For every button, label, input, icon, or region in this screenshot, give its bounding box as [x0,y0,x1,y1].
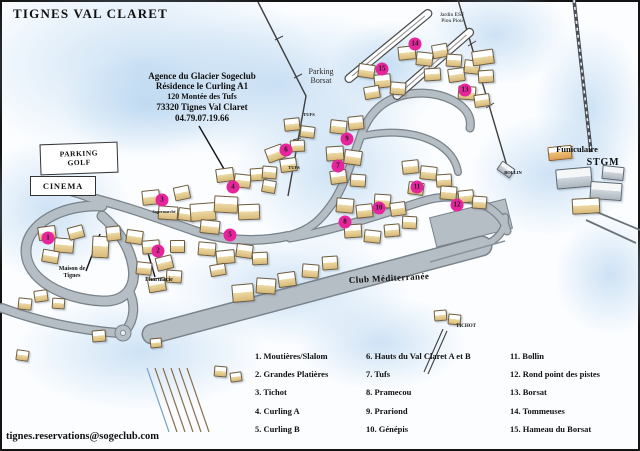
building [215,249,235,265]
building [329,119,347,135]
legend-item: 4. Curling A [255,406,328,416]
building [471,49,495,67]
building [383,223,400,237]
legend-item: 14. Tommeuses [510,406,600,416]
building [261,165,277,179]
stgm-label: STGM [587,157,620,168]
agency-address-block: Agence du Glacier Sogeclub Résidence le … [128,71,276,123]
building [290,140,306,153]
legend-item: 10. Génépis [366,424,471,434]
building [363,229,381,244]
building [355,203,373,219]
building [322,255,339,270]
bollin-label: BOLLIN [504,170,522,175]
building [478,69,495,83]
legend-item: 12. Rond point des pistes [510,369,600,379]
legend-item: 6. Hauts du Val Claret A et B [366,351,471,361]
agency-line-3: 120 Montée des Tufs [128,92,276,102]
building [439,185,457,200]
building [105,225,121,241]
supermarche-label: Supermarché [152,209,175,214]
building [415,51,433,67]
building [424,67,442,81]
building [261,179,277,194]
tufs-lift-label-upper: TUFS [303,112,315,117]
building [397,45,416,61]
building [215,167,235,183]
building [17,297,32,310]
legend-item: 2. Grandes Platières [255,369,328,379]
building [555,166,593,189]
legend-item: 1. Moutières/Slalom [255,351,328,361]
agency-line-1: Agence du Glacier Sogeclub [128,71,276,81]
legend-item: 7. Tufs [366,369,471,379]
building [231,283,254,303]
building [214,195,239,213]
building [389,81,406,95]
tichot-label: TICHOT [456,324,476,329]
building [150,337,163,348]
legend-column-1: 1. Moutières/Slalom2. Grandes Platières3… [255,351,328,442]
building [343,149,363,166]
building [209,263,227,278]
building [214,365,228,377]
map-canvas: PARKING GOLF CINEMA TIGNES VAL CLARET Ag… [0,0,640,451]
legend-item: 8. Pramecou [366,387,471,397]
building [238,204,261,221]
agency-line-2: Résidence le Curling A1 [128,81,276,91]
building [141,189,160,206]
building [141,239,160,255]
building [329,169,348,185]
tufs-lift-label-lower: TUFS [288,165,300,170]
legend-item: 9. Prariond [366,406,471,416]
pharmacie-label: Pharmacie [145,277,173,284]
agency-line-5: 04.79.07.19.66 [128,113,276,123]
building [52,298,66,310]
jardin-esf-piou-piou-label: Jardin ESF Piou Piou [440,12,464,24]
building [363,85,381,101]
legend-item: 11. Bollin [510,351,600,361]
building [407,181,425,196]
building [41,249,60,265]
contact-email: tignes.reservations@sogeclub.com [6,431,159,442]
maison-de-tignes-label: Maison de Tignes [59,266,86,279]
building [325,145,344,161]
building [170,240,185,253]
building [173,184,192,201]
building [434,309,448,321]
building [473,93,491,108]
parking-borsat-label: Parking Borsat [309,68,334,85]
building [255,277,276,294]
building [572,197,601,214]
building [199,219,220,235]
building [135,261,152,276]
building [252,252,269,266]
building [33,289,49,303]
legend-item: 5. Curling B [255,424,328,434]
legend-item: 15. Hameau du Borsat [510,424,600,434]
building [401,159,419,175]
legend-column-2: 6. Hauts du Val Claret A et B7. Tufs8. P… [366,351,471,442]
building [197,241,216,257]
building [350,173,367,187]
building [15,349,29,362]
funiculaire-label: Funiculaire [556,144,598,154]
building [344,223,363,238]
building [389,201,407,217]
building [92,329,107,342]
building [233,173,251,189]
building [283,117,300,132]
building [301,263,319,278]
map-title: TIGNES VAL CLARET [13,6,168,22]
legend-item: 3. Tichot [255,387,328,397]
building [229,371,242,383]
building [472,195,488,209]
building [299,125,315,139]
legend-column-3: 11. Bollin12. Rond point des pistes13. B… [510,351,600,442]
agency-line-4: 73320 Tignes Val Claret [128,102,276,112]
building [402,216,418,230]
building [277,271,297,288]
building [347,115,364,131]
building [446,53,463,67]
legend-item: 13. Borsat [510,387,600,397]
building [335,197,354,214]
building [67,224,86,241]
